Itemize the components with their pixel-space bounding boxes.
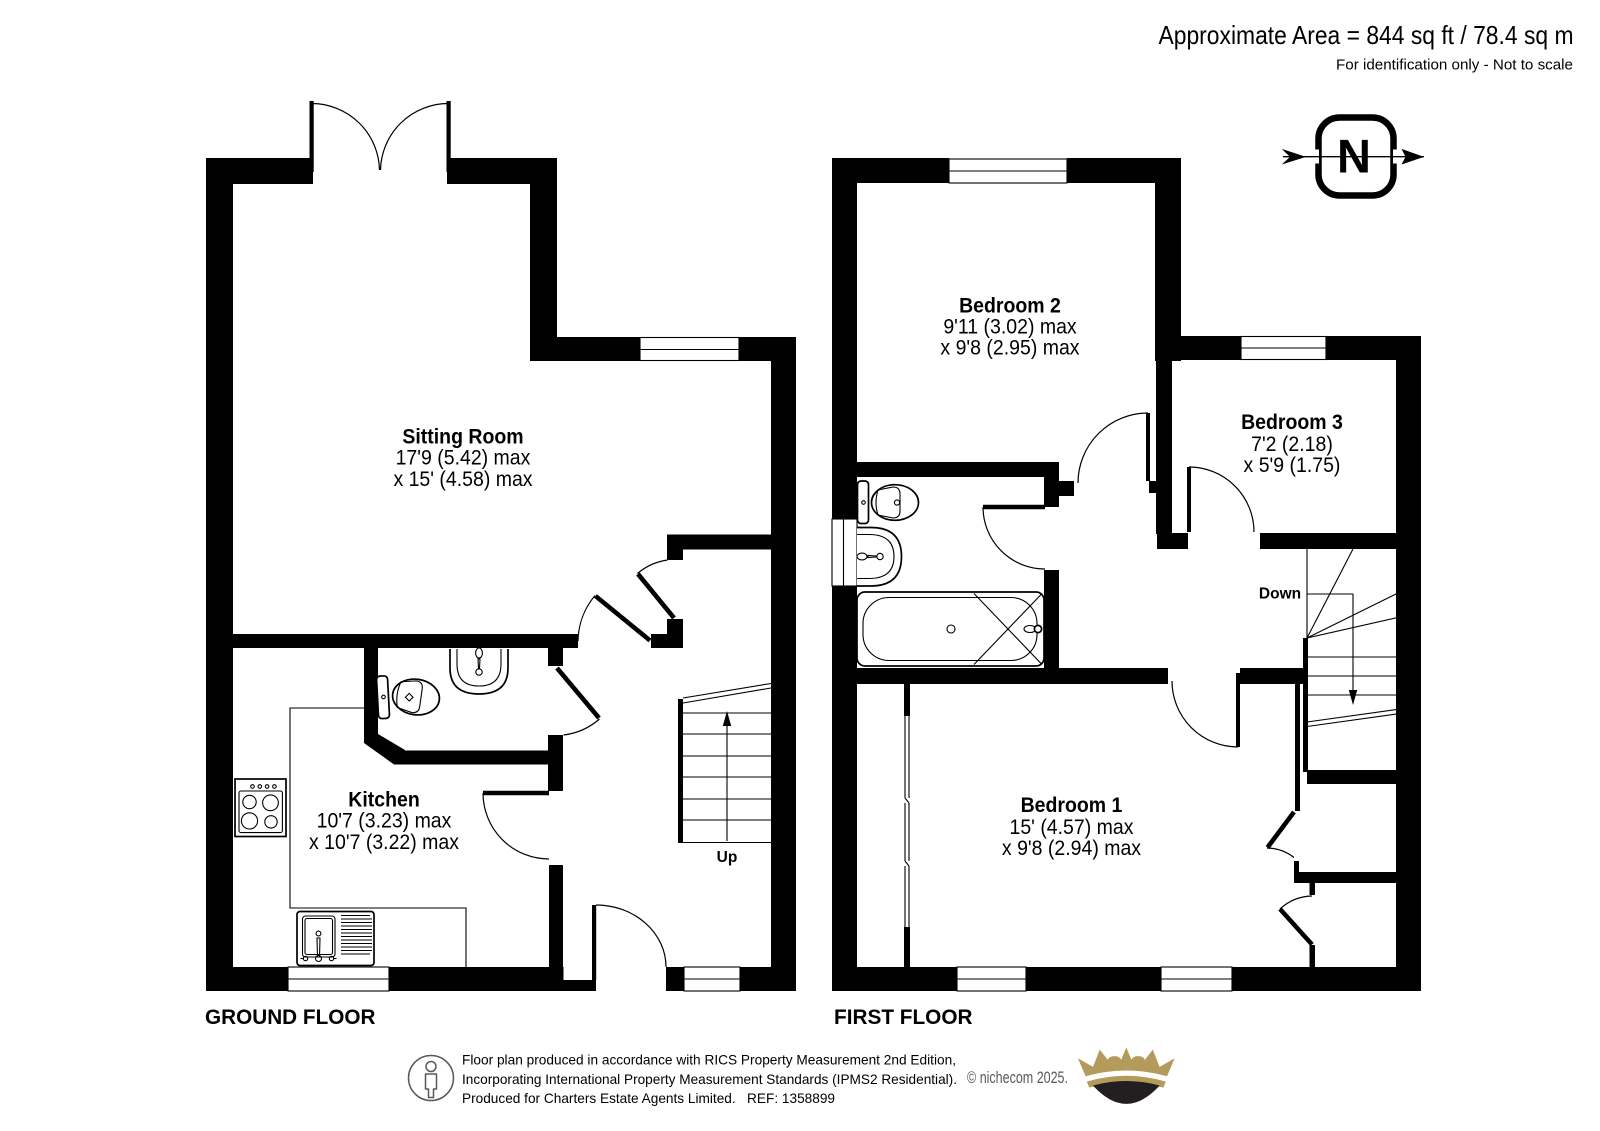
svg-text:Produced for Charters Estate A: Produced for Charters Estate Agents Limi… xyxy=(462,1091,835,1106)
svg-text:Down: Down xyxy=(1259,586,1301,603)
svg-text:Bedroom 3: Bedroom 3 xyxy=(1241,410,1343,434)
svg-text:Up: Up xyxy=(717,849,738,866)
svg-text:x 5'9 (1.75): x 5'9 (1.75) xyxy=(1244,453,1341,477)
svg-text:For identification only - Not: For identification only - Not to scale xyxy=(1336,57,1573,74)
svg-text:x 15' (4.58) max: x 15' (4.58) max xyxy=(393,467,533,491)
svg-text:x 10'7 (3.22) max: x 10'7 (3.22) max xyxy=(309,830,460,854)
svg-text:Approximate Area = 844 sq ft /: Approximate Area = 844 sq ft / 78.4 sq m xyxy=(1159,20,1574,50)
svg-text:N: N xyxy=(1337,130,1371,183)
svg-text:Bedroom 1: Bedroom 1 xyxy=(1021,793,1123,817)
svg-text:GROUND FLOOR: GROUND FLOOR xyxy=(205,1005,376,1029)
svg-text:x 9'8 (2.94) max: x 9'8 (2.94) max xyxy=(1002,836,1142,860)
svg-text:Incorporating International Pr: Incorporating International Property Mea… xyxy=(462,1072,957,1087)
svg-text:© nichecom 2025.: © nichecom 2025. xyxy=(967,1068,1068,1087)
svg-text:Floor plan produced in accorda: Floor plan produced in accordance with R… xyxy=(462,1053,956,1068)
svg-text:FIRST FLOOR: FIRST FLOOR xyxy=(834,1005,973,1029)
svg-text:x 9'8 (2.95) max: x 9'8 (2.95) max xyxy=(940,336,1080,360)
